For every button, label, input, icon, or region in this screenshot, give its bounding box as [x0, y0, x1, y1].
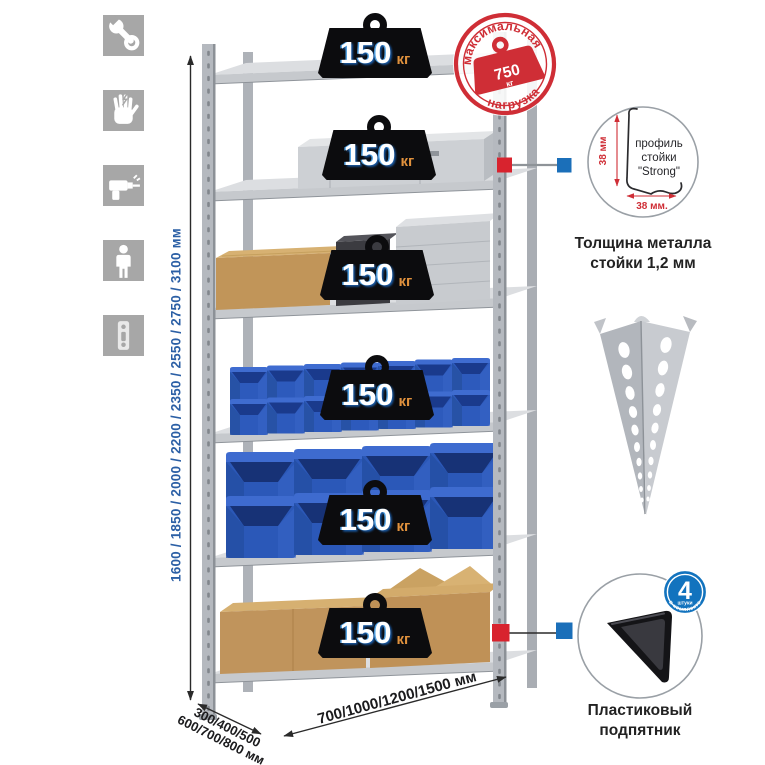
connector-red-marker-bottom	[492, 624, 510, 642]
drill-icon	[103, 165, 144, 206]
shelf-load-badge-5: 150кг	[318, 480, 432, 545]
profile-label-1: профиль	[635, 138, 683, 150]
height-dimension-label: 1600 / 1850 / 2000 / 2200 / 2350 / 2550 …	[169, 228, 184, 582]
kit-count-badge: 4 штуки в комплекте	[664, 571, 707, 614]
shelf-load-badge-2: 150кг	[322, 115, 436, 180]
profile-label-3: "Strong"	[638, 166, 680, 178]
profile-label-2: стойки	[641, 152, 676, 164]
connector-blue-marker-bottom	[556, 623, 573, 640]
shelf-load-badge-6: 150кг	[318, 593, 432, 658]
shelf-load-badge-1: 150кг	[318, 13, 432, 78]
profile-dim-height: 38 мм	[598, 137, 609, 166]
shelf-load-badge-3: 150кг	[320, 235, 434, 300]
work-gloves-icon	[103, 90, 144, 131]
perforated-profile-icon	[103, 315, 144, 356]
profile-caption: Толщина металла стойки 1,2 мм	[575, 234, 712, 274]
connector-red-marker-top	[497, 158, 512, 173]
profile-dim-width: 38 мм.	[636, 201, 668, 212]
kit-count-unit: штуки	[677, 601, 692, 607]
max-load-stamp: максимальная нагрузка 750 кг	[442, 1, 568, 127]
connector-blue-marker-top	[557, 158, 572, 173]
foot-caption: Пластиковый подпятник	[588, 701, 693, 741]
post-profile-detail-circle: 38 мм 38 мм. профиль стойки "Strong"	[588, 107, 698, 217]
person-height-icon	[103, 240, 144, 281]
wrench-icon	[103, 15, 144, 56]
shelving-product-infographic: максимальная нагрузка 750 кг 38 мм 38 мм…	[0, 0, 765, 765]
plastic-foot-detail-circle: 4 штуки в комплекте	[578, 571, 707, 699]
corner-post-graphic	[594, 316, 697, 515]
shelf-load-badge-4: 150кг	[320, 355, 434, 420]
